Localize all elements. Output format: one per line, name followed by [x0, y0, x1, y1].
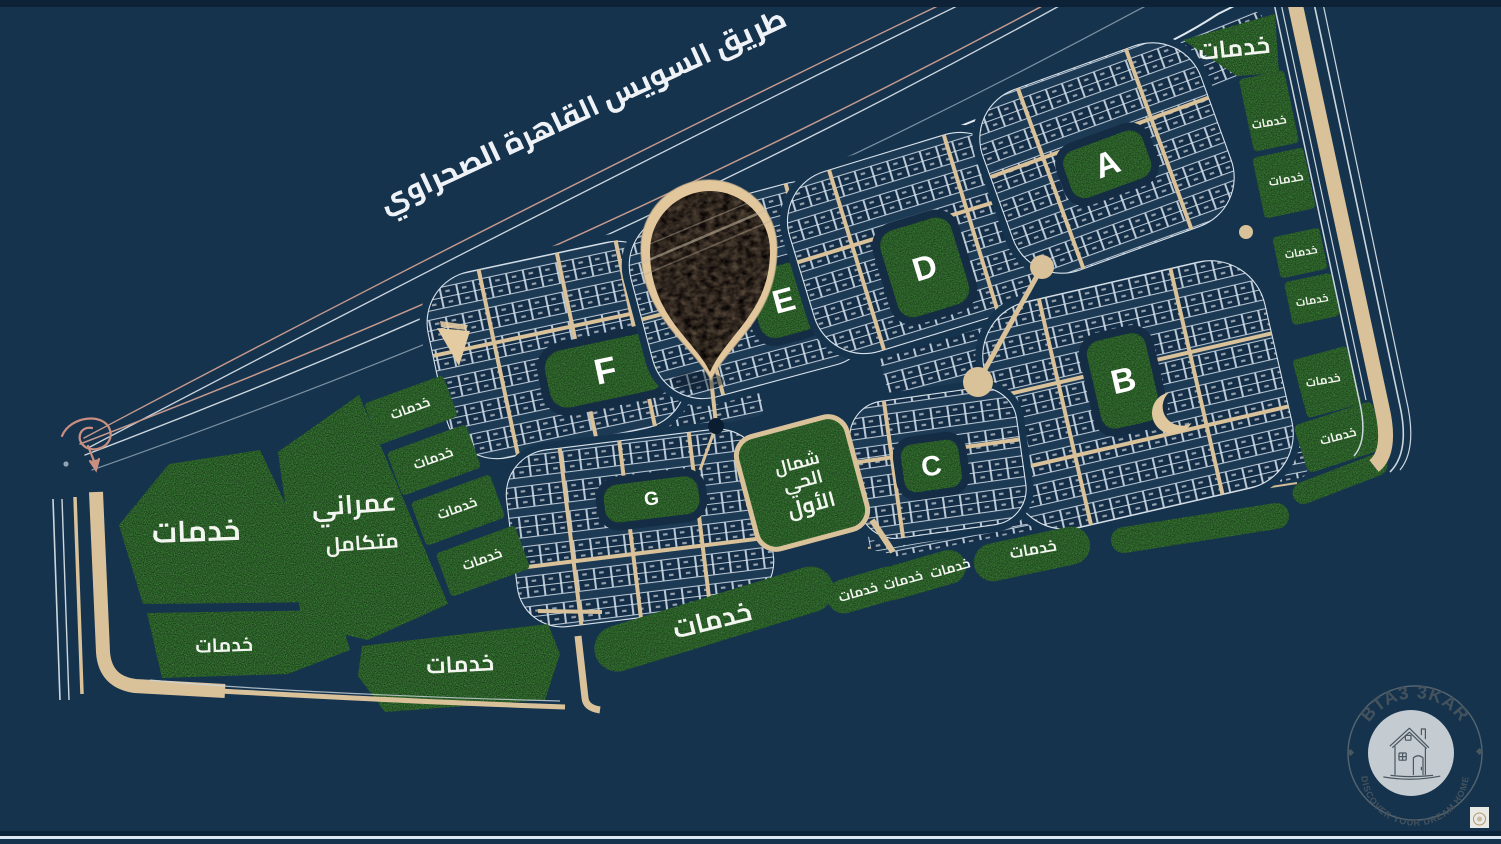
svg-text:C: C [919, 449, 943, 483]
svg-text:G: G [643, 488, 660, 511]
